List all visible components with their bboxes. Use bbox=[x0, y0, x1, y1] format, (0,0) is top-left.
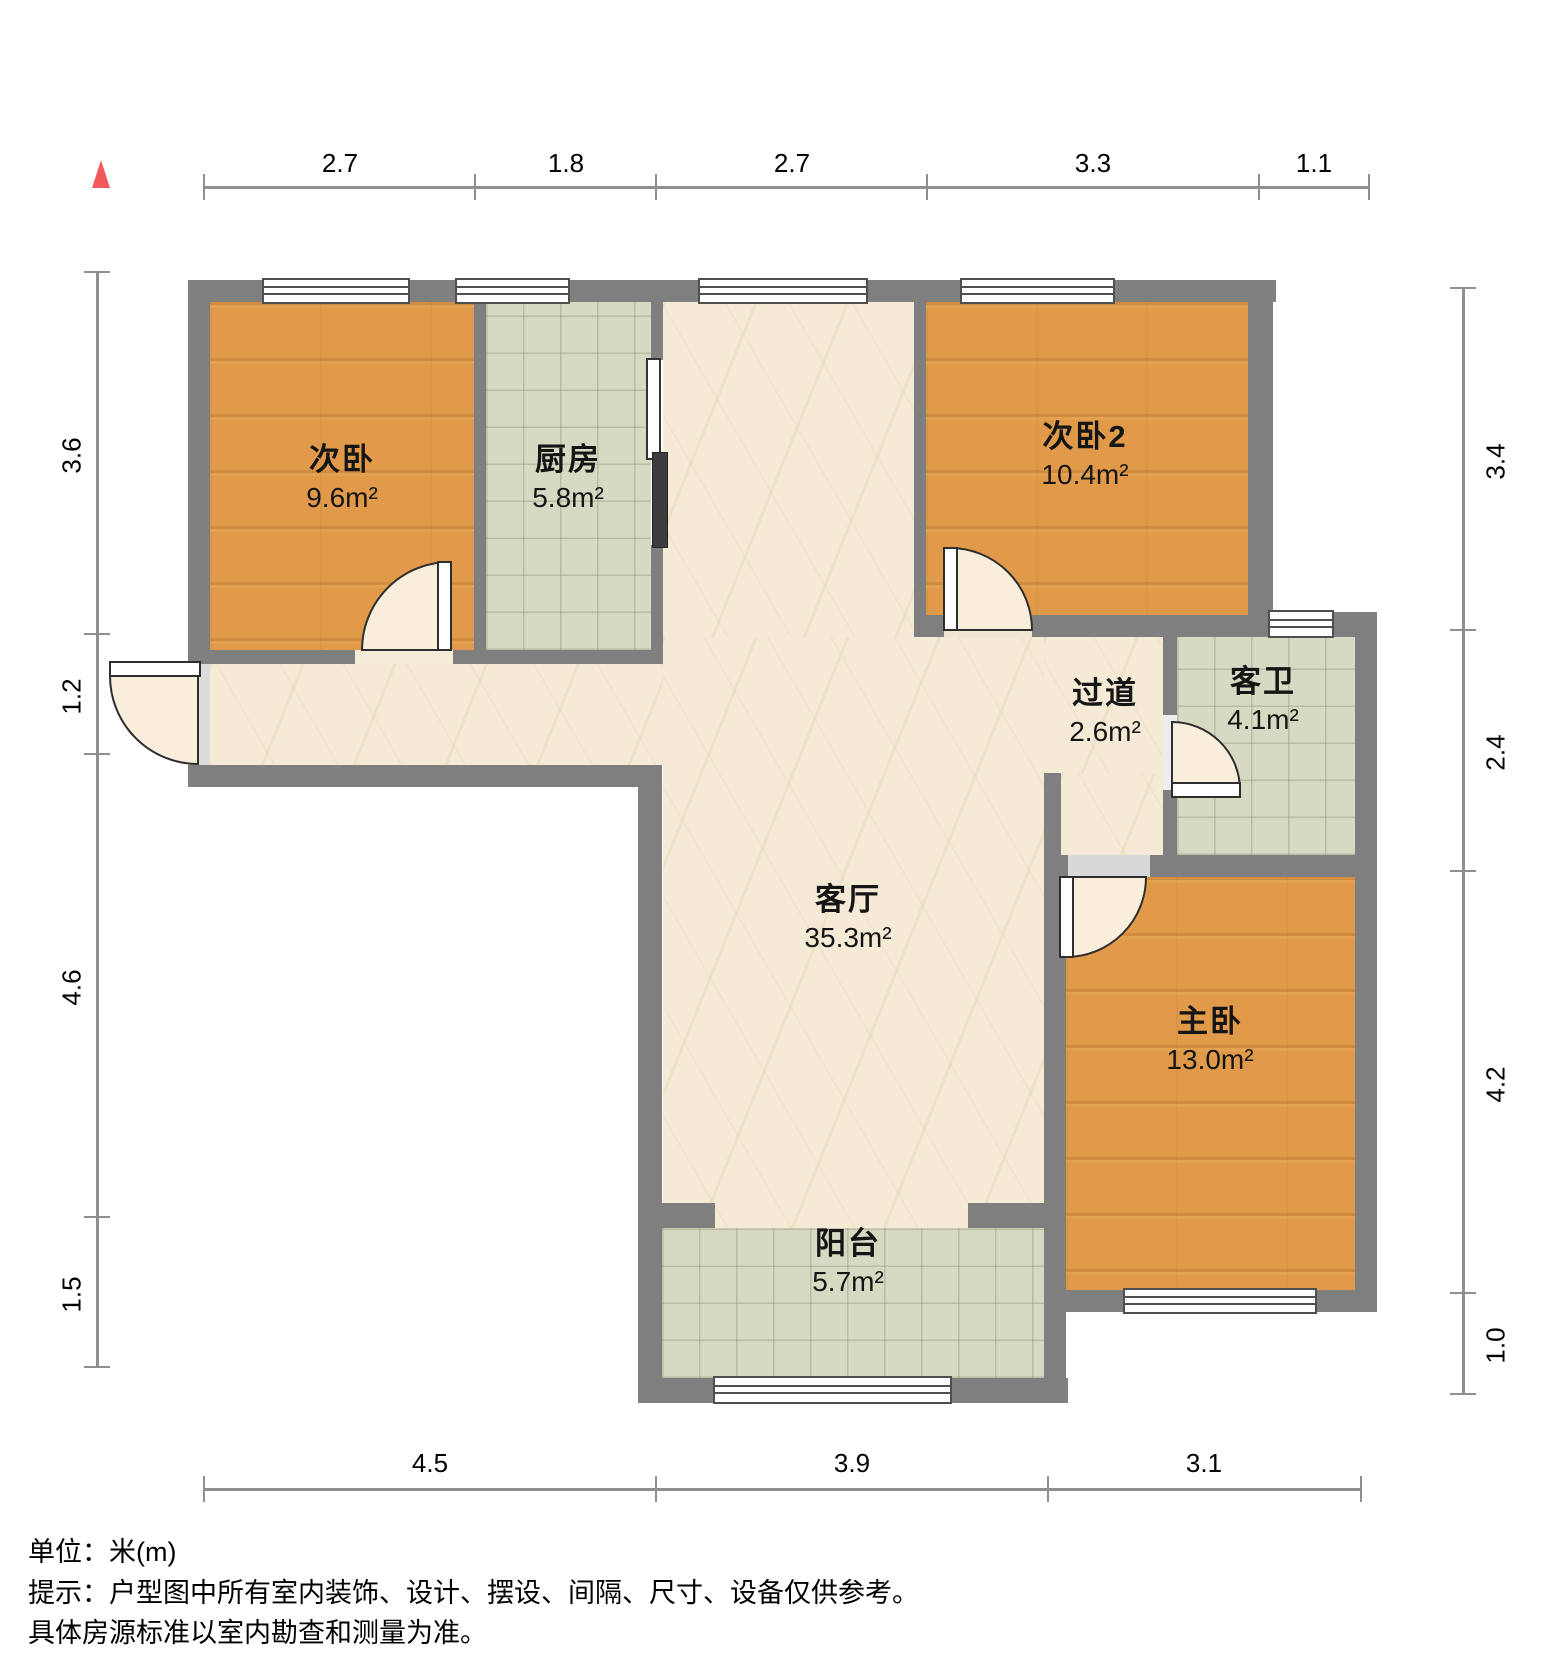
bathroom-door-leaf bbox=[1172, 783, 1240, 797]
master-door-leaf bbox=[1060, 877, 1073, 957]
floor-plan-page: 次卧 9.6m² 厨房 5.8m² 次卧2 10.4m² 过道 2.6m² 客卫… bbox=[0, 0, 1566, 1680]
room-name: 过道 bbox=[1069, 675, 1141, 714]
door-symbols bbox=[0, 0, 1566, 1680]
dim-label: 4.5 bbox=[400, 1448, 460, 1479]
dim-label: 1.5 bbox=[57, 1265, 88, 1325]
room-label-bedroom2: 次卧 9.6m² bbox=[306, 441, 378, 515]
disclaimer-line-1: 提示：户型图中所有室内装饰、设计、摆设、间隔、尺寸、设备仅供参考。 bbox=[28, 1573, 919, 1614]
dim-label: 2.7 bbox=[762, 148, 822, 179]
room-name: 次卧 bbox=[306, 441, 378, 480]
room-area: 2.6m² bbox=[1069, 714, 1141, 749]
room-area: 4.1m² bbox=[1227, 702, 1299, 737]
room-area: 13.0m² bbox=[1166, 1042, 1253, 1077]
room-label-bathroom: 客卫 4.1m² bbox=[1227, 663, 1299, 737]
room-name: 客卫 bbox=[1227, 663, 1299, 702]
room-label-hallway: 过道 2.6m² bbox=[1069, 675, 1141, 749]
room-area: 5.7m² bbox=[812, 1264, 884, 1299]
dim-label: 3.9 bbox=[822, 1448, 882, 1479]
dim-label: 4.6 bbox=[57, 958, 88, 1018]
dim-label: 4.2 bbox=[1481, 1055, 1512, 1115]
dim-label: 1.1 bbox=[1284, 148, 1344, 179]
bedroom2-door-leaf bbox=[438, 562, 451, 650]
room-area: 10.4m² bbox=[1041, 457, 1128, 492]
room-area: 9.6m² bbox=[306, 480, 378, 515]
dim-label: 3.3 bbox=[1063, 148, 1123, 179]
bedroom3-door-arc bbox=[950, 548, 1032, 630]
bedroom2-door-arc bbox=[362, 562, 450, 650]
dim-label: 3.1 bbox=[1174, 1448, 1234, 1479]
room-name: 客厅 bbox=[804, 881, 891, 920]
room-label-master: 主卧 13.0m² bbox=[1166, 1003, 1253, 1077]
room-label-bedroom3: 次卧2 10.4m² bbox=[1041, 418, 1128, 492]
room-label-balcony: 阳台 5.7m² bbox=[812, 1225, 884, 1299]
dim-label: 3.6 bbox=[57, 426, 88, 486]
master-door-arc bbox=[1066, 877, 1146, 957]
room-name: 次卧2 bbox=[1041, 418, 1128, 457]
disclaimer-line-2: 具体房源标准以室内勘查和测量为准。 bbox=[28, 1613, 919, 1654]
entry-door-arc bbox=[110, 676, 198, 764]
room-name: 主卧 bbox=[1166, 1003, 1253, 1042]
room-name: 厨房 bbox=[532, 441, 604, 480]
dim-label: 2.4 bbox=[1481, 723, 1512, 783]
room-area: 35.3m² bbox=[804, 920, 891, 955]
dim-label: 1.8 bbox=[536, 148, 596, 179]
footer-notes: 单位：米(m) 提示：户型图中所有室内装饰、设计、摆设、间隔、尺寸、设备仅供参考… bbox=[28, 1532, 919, 1654]
room-area: 5.8m² bbox=[532, 480, 604, 515]
dim-label: 1.0 bbox=[1481, 1316, 1512, 1376]
dim-label: 2.7 bbox=[310, 148, 370, 179]
room-label-kitchen: 厨房 5.8m² bbox=[532, 441, 604, 515]
unit-note: 单位：米(m) bbox=[28, 1532, 919, 1573]
room-name: 阳台 bbox=[812, 1225, 884, 1264]
entry-door-leaf bbox=[110, 662, 200, 676]
bedroom3-door-leaf bbox=[944, 548, 957, 630]
dim-label: 3.4 bbox=[1481, 432, 1512, 492]
north-compass-icon bbox=[92, 160, 110, 188]
dim-label: 1.2 bbox=[57, 667, 88, 727]
room-label-living: 客厅 35.3m² bbox=[804, 881, 891, 955]
